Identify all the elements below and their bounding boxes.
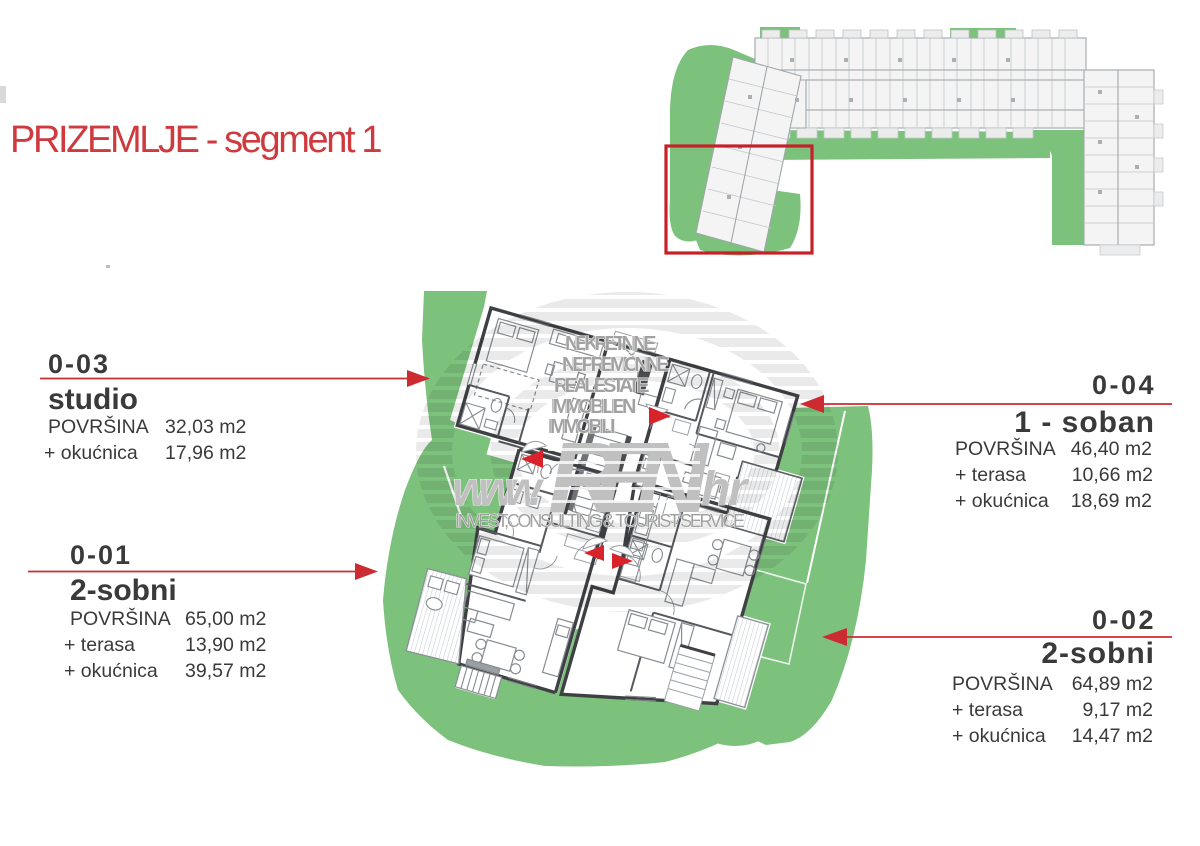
svg-text:+ terasa: + terasa — [952, 699, 1023, 721]
svg-text:39,57 m2: 39,57 m2 — [185, 660, 266, 682]
svg-text:+ terasa: + terasa — [955, 464, 1026, 486]
svg-text:1 - soban: 1 - soban — [1014, 406, 1155, 439]
svg-text:0-04: 0-04 — [1092, 370, 1156, 400]
svg-text:14,47 m2: 14,47 m2 — [1072, 725, 1153, 747]
svg-text:2-sobni: 2-sobni — [70, 574, 177, 607]
svg-text:0-02: 0-02 — [1092, 605, 1156, 635]
svg-text:hr: hr — [701, 463, 749, 516]
svg-text:INVEST,CONSULTING & TOURIST SE: INVEST,CONSULTING & TOURIST SERVICE — [455, 511, 745, 531]
svg-text:18,69 m2: 18,69 m2 — [1071, 490, 1152, 512]
svg-text:+ terasa: + terasa — [64, 634, 135, 656]
svg-text:+ okućnica: + okućnica — [952, 725, 1046, 747]
svg-text:+ okućnica: + okućnica — [64, 660, 158, 682]
svg-text:0-03: 0-03 — [48, 349, 110, 379]
svg-text:IMMOBILIEN: IMMOBILIEN — [551, 396, 637, 418]
svg-text:REAL ESTATE: REAL ESTATE — [554, 375, 650, 397]
svg-text:17,96 m2: 17,96 m2 — [165, 442, 246, 464]
svg-text:0-01: 0-01 — [70, 540, 132, 570]
svg-text:PRIZEMLJE - segment 1: PRIZEMLJE - segment 1 — [10, 119, 384, 161]
svg-text:13,90 m2: 13,90 m2 — [185, 634, 266, 656]
svg-text:64,89 m2: 64,89 m2 — [1072, 673, 1153, 695]
svg-text:NEPREMIČNINE: NEPREMIČNINE — [562, 352, 670, 376]
svg-text:POVRŠINA: POVRŠINA — [955, 437, 1056, 460]
svg-text:POVRŠINA: POVRŠINA — [48, 415, 149, 438]
svg-text:32,03 m2: 32,03 m2 — [165, 416, 246, 438]
svg-text:+ okućnica: + okućnica — [44, 442, 138, 464]
svg-text:2-sobni: 2-sobni — [1041, 637, 1155, 670]
svg-text:9,17 m2: 9,17 m2 — [1083, 699, 1153, 721]
svg-text:NEKRETNINE: NEKRETNINE — [565, 333, 657, 355]
svg-text:65,00 m2: 65,00 m2 — [185, 608, 266, 630]
svg-text:www.: www. — [452, 463, 544, 516]
svg-text:POVRŠINA: POVRŠINA — [952, 672, 1053, 695]
svg-text:10,66 m2: 10,66 m2 — [1072, 464, 1153, 486]
svg-text:POVRŠINA: POVRŠINA — [70, 607, 171, 630]
svg-text:46,40 m2: 46,40 m2 — [1071, 438, 1152, 460]
svg-text:studio: studio — [48, 383, 138, 416]
svg-text:+ okućnica: + okućnica — [955, 490, 1049, 512]
